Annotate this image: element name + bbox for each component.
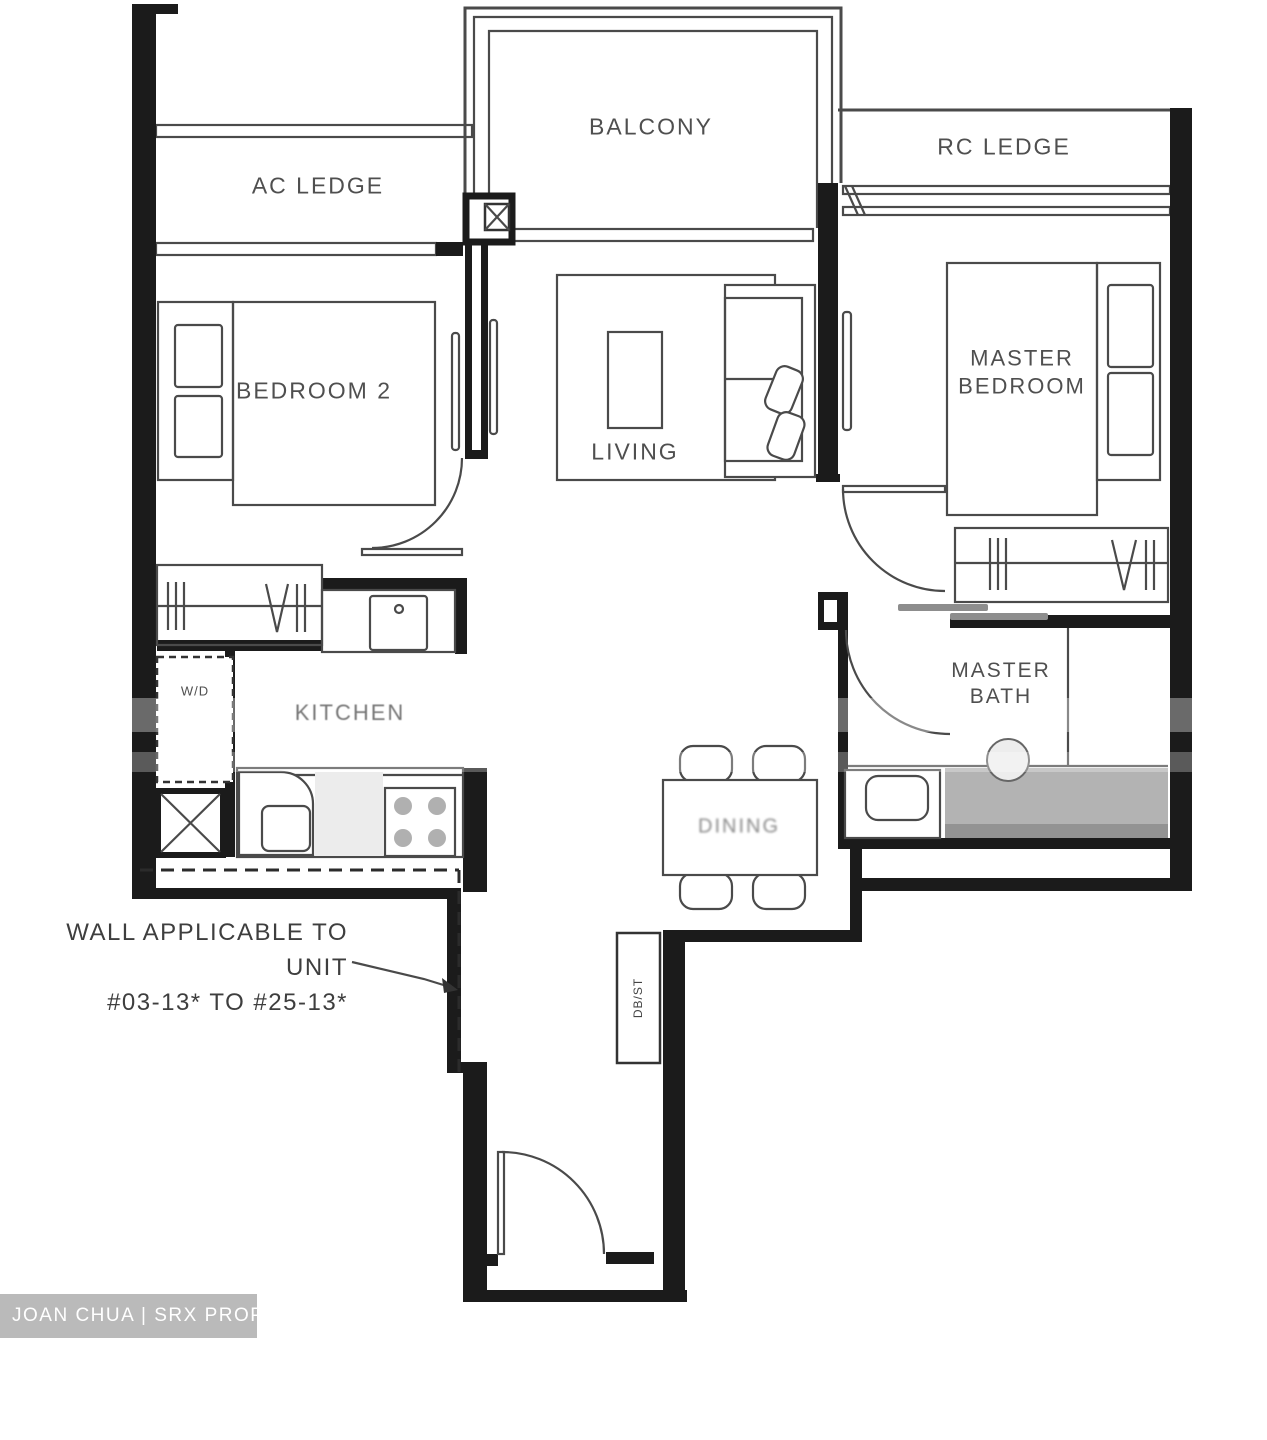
bedroom2-door bbox=[362, 320, 497, 555]
label-master-bath: MASTER BATH bbox=[931, 658, 1071, 711]
bedroom2-wardrobe bbox=[157, 565, 322, 645]
entrance-door bbox=[498, 1152, 604, 1254]
wall-applicability-note: WALL APPLICABLE TO UNIT #03-13* TO #25-1… bbox=[28, 916, 348, 1020]
label-dining: DINING bbox=[698, 816, 780, 839]
label-living: LIVING bbox=[591, 439, 678, 466]
note-leader-line bbox=[352, 962, 458, 993]
label-ac-ledge: AC LEDGE bbox=[252, 173, 384, 200]
shelter-shaft bbox=[158, 791, 223, 855]
note-line-2: #03-13* TO #25-13* bbox=[28, 986, 348, 1021]
label-kitchen: KITCHEN bbox=[295, 700, 406, 726]
label-dbst: DB/ST bbox=[631, 978, 645, 1018]
label-rc-ledge: RC LEDGE bbox=[937, 134, 1071, 161]
master-wardrobe bbox=[955, 528, 1168, 602]
floor-plan: AC LEDGE BALCONY RC LEDGE BEDROOM 2 LIVI… bbox=[0, 0, 1267, 1440]
watermark-text: JOAN CHUA | SRX PROPERTY bbox=[12, 1305, 321, 1326]
label-balcony: BALCONY bbox=[589, 114, 713, 141]
note-line-1: WALL APPLICABLE TO UNIT bbox=[28, 916, 348, 986]
label-master-bedroom: MASTER BEDROOM bbox=[937, 345, 1107, 400]
label-washer-dryer: W/D bbox=[181, 684, 209, 699]
master-bedroom-door bbox=[843, 486, 1048, 620]
agent-watermark: JOAN CHUA | SRX PROPERTY bbox=[0, 1294, 257, 1338]
label-bedroom2: BEDROOM 2 bbox=[236, 378, 392, 405]
ac-duct-post bbox=[466, 196, 512, 242]
floor-plan-linework bbox=[0, 0, 1267, 1440]
master-window bbox=[843, 186, 1170, 215]
